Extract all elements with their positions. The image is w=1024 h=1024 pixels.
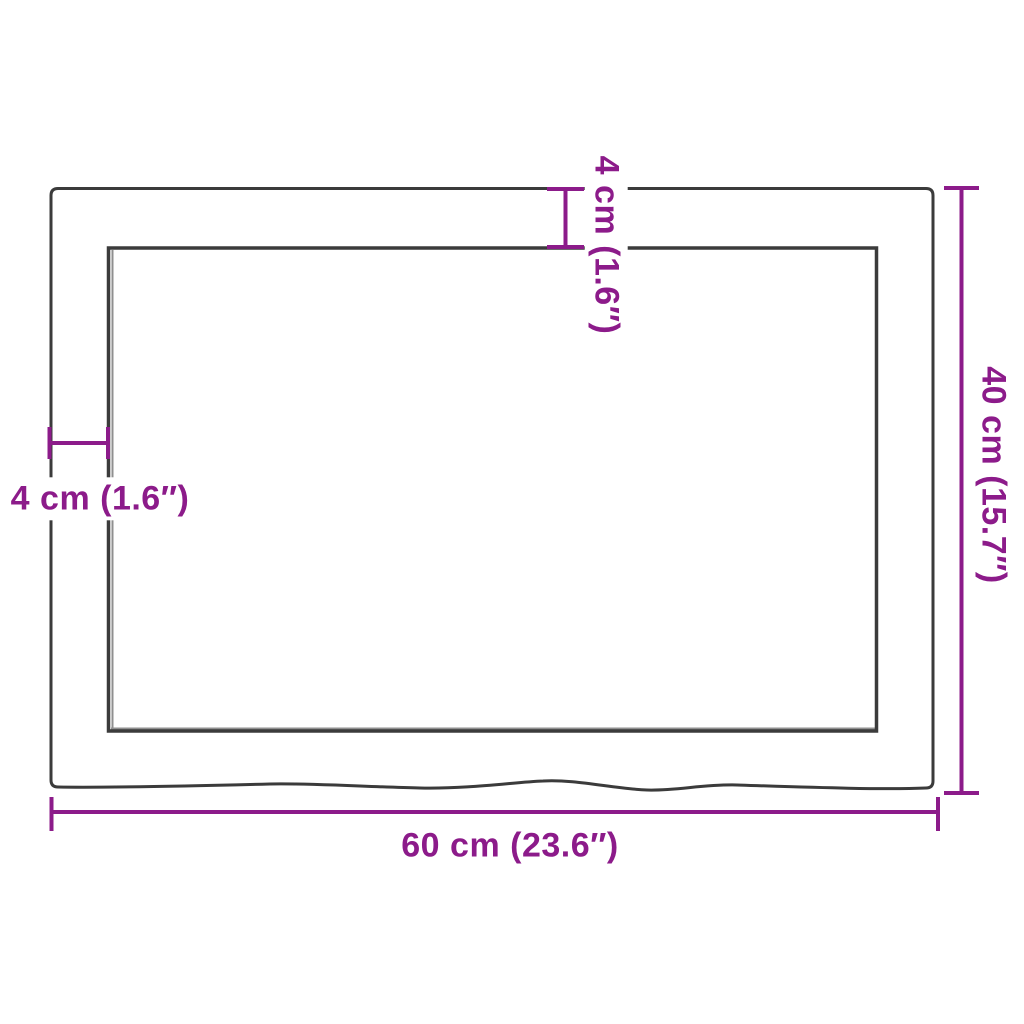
height-dimension-label: 40 cm (15.7″) xyxy=(971,359,1014,590)
recess-outline-group xyxy=(109,248,877,731)
width-dimension-label: 60 cm (23.6″) xyxy=(394,824,625,867)
top-offset-dimension-label: 4 cm (1.6″) xyxy=(584,149,627,342)
left-offset-dimension-label: 4 cm (1.6″) xyxy=(4,477,197,520)
recess-outer-edge xyxy=(109,248,877,731)
recess-shadow-group xyxy=(111,250,875,729)
dimension-diagram: 60 cm (23.6″) 40 cm (15.7″) 4 cm (1.6″) … xyxy=(0,0,1024,1024)
